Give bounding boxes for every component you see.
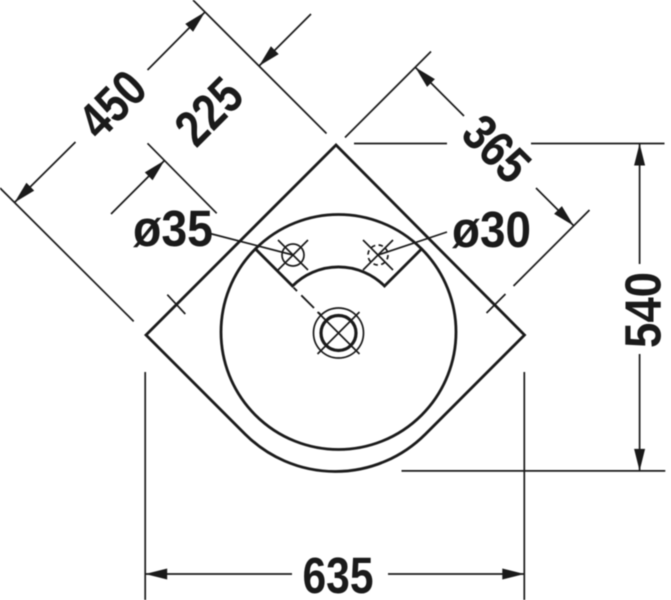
svg-text:ø35: ø35 xyxy=(133,200,213,257)
svg-text:635: 635 xyxy=(303,547,374,600)
svg-text:450: 450 xyxy=(67,59,158,150)
svg-text:ø30: ø30 xyxy=(452,201,531,258)
svg-text:365: 365 xyxy=(451,104,542,195)
svg-text:540: 540 xyxy=(615,272,671,348)
svg-text:225: 225 xyxy=(164,66,255,157)
